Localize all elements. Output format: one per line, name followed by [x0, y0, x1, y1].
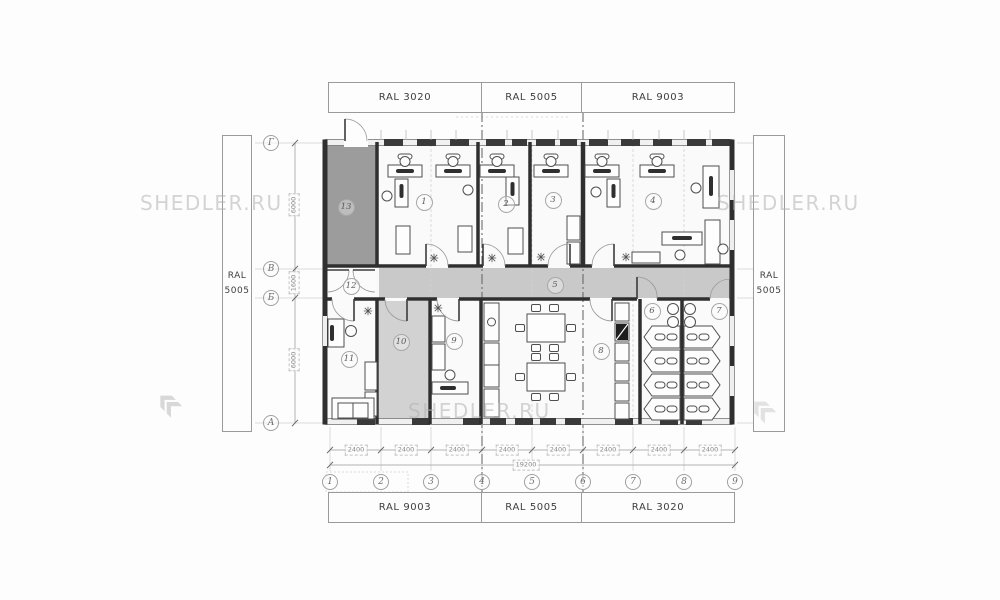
grid-column-bubble: 2: [373, 474, 389, 490]
ral-label-bottom-3: RAL 3020: [581, 492, 735, 523]
bay-dimension-label: 2400: [345, 445, 368, 456]
grid-column-bubble: 4: [474, 474, 490, 490]
room-number-bubble: 11: [341, 351, 358, 368]
bay-dimension-label: 2400: [597, 445, 620, 456]
floor-plan-page: SHEDLER.RUSHEDLER.RUSHEDLER.RU RAL 3020 …: [0, 0, 1000, 600]
ral-label-top-3: RAL 9003: [581, 82, 735, 113]
bay-dimension-label: 2400: [547, 445, 570, 456]
grid-row-bubble: Г: [263, 135, 279, 151]
ral-label-bottom-1: RAL 9003: [328, 492, 482, 523]
left-dimension-label: 6000: [289, 349, 300, 372]
room-number-bubble: 2: [498, 196, 515, 213]
room-number-bubble: 7: [711, 303, 728, 320]
left-ral-line2: 5005: [225, 284, 250, 298]
watermark-text: SHEDLER.RU: [717, 191, 860, 215]
room-number-bubble: 9: [446, 333, 463, 350]
bay-dimension-label: 2400: [496, 445, 519, 456]
bay-dimension-label: 2400: [395, 445, 418, 456]
left-ral-line1: RAL: [228, 269, 247, 283]
left-dimension-label: 1600: [289, 272, 300, 295]
top-ral-band: RAL 3020 RAL 5005 RAL 9003: [328, 82, 735, 113]
total-dimension-label: 19200: [513, 460, 540, 471]
grid-column-bubble: 1: [322, 474, 338, 490]
grid-row-bubble: А: [263, 415, 279, 431]
bay-dimension-label: 2400: [648, 445, 671, 456]
grid-column-bubble: 7: [625, 474, 641, 490]
ral-label-bottom-2: RAL 5005: [481, 492, 582, 523]
grid-row-bubble: Б: [263, 290, 279, 306]
right-ral-box: RAL 5005: [753, 135, 785, 432]
right-ral-line1: RAL: [760, 269, 779, 283]
grid-column-bubble: 5: [524, 474, 540, 490]
ral-label-top-2: RAL 5005: [481, 82, 582, 113]
bay-dimension-label: 2400: [446, 445, 469, 456]
left-dimension-label: 6000: [289, 194, 300, 217]
room-number-bubble: 4: [645, 193, 662, 210]
bottom-ral-band: RAL 9003 RAL 5005 RAL 3020: [328, 492, 735, 523]
room-number-bubble: 10: [393, 334, 410, 351]
grid-column-bubble: 8: [676, 474, 692, 490]
room-number-bubble: 12: [343, 278, 360, 295]
grid-column-bubble: 6: [575, 474, 591, 490]
room-number-bubble: 5: [547, 277, 564, 294]
watermark-text: SHEDLER.RU: [140, 191, 283, 215]
room-number-bubble: 6: [644, 303, 661, 320]
grid-row-bubble: В: [263, 261, 279, 277]
bay-dimension-label: 2400: [699, 445, 722, 456]
room-number-bubble: 8: [593, 343, 610, 360]
right-ral-line2: 5005: [757, 284, 782, 298]
room-number-bubble: 13: [338, 199, 355, 216]
room-number-bubble: 1: [416, 194, 433, 211]
left-ral-box: RAL 5005: [222, 135, 252, 432]
ral-label-top-1: RAL 3020: [328, 82, 482, 113]
grid-column-bubble: 9: [727, 474, 743, 490]
grid-column-bubble: 3: [423, 474, 439, 490]
room-number-bubble: 3: [545, 192, 562, 209]
shedler-logo-icon: [155, 390, 183, 418]
watermark-text: SHEDLER.RU: [408, 399, 551, 423]
